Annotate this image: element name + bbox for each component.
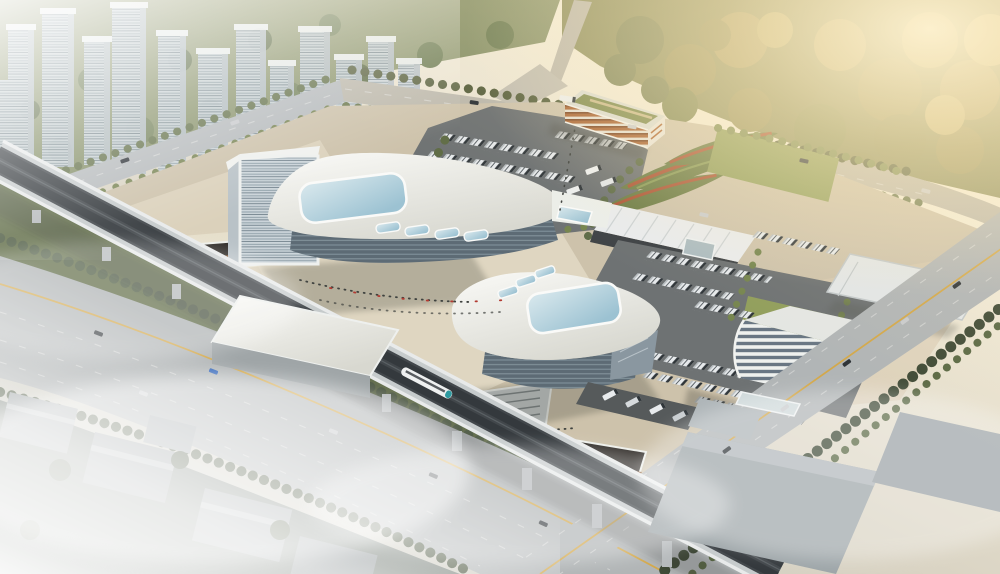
- aerial-rendering-canvas: [0, 0, 1000, 574]
- warm-light-tint: [0, 0, 1000, 574]
- rendering-svg: [0, 0, 1000, 574]
- fog-and-light: [0, 0, 1000, 574]
